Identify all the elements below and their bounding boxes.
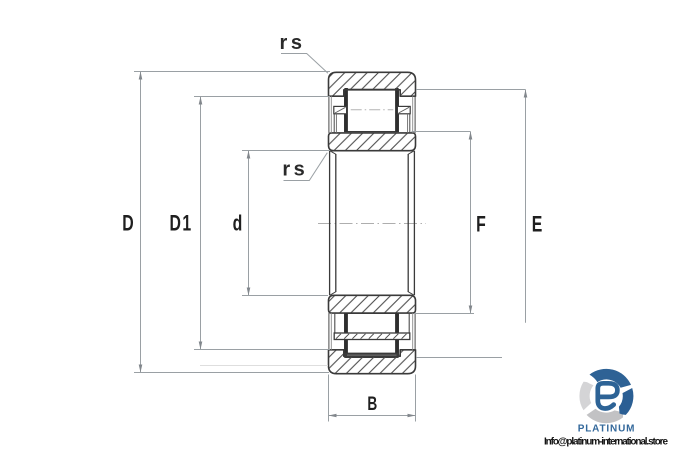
svg-text:D1: D1 bbox=[169, 212, 192, 236]
svg-text:E: E bbox=[532, 213, 543, 237]
svg-text:d: d bbox=[233, 212, 243, 236]
svg-text:PLATINUM: PLATINUM bbox=[578, 423, 636, 434]
svg-text:D: D bbox=[122, 212, 134, 236]
svg-text:Info@platinum-international.st: Info@platinum-international.store bbox=[544, 437, 668, 448]
svg-text:F: F bbox=[476, 213, 486, 237]
svg-text:rs: rs bbox=[280, 32, 306, 54]
svg-text:B: B bbox=[367, 393, 377, 415]
svg-text:rs: rs bbox=[282, 159, 308, 181]
